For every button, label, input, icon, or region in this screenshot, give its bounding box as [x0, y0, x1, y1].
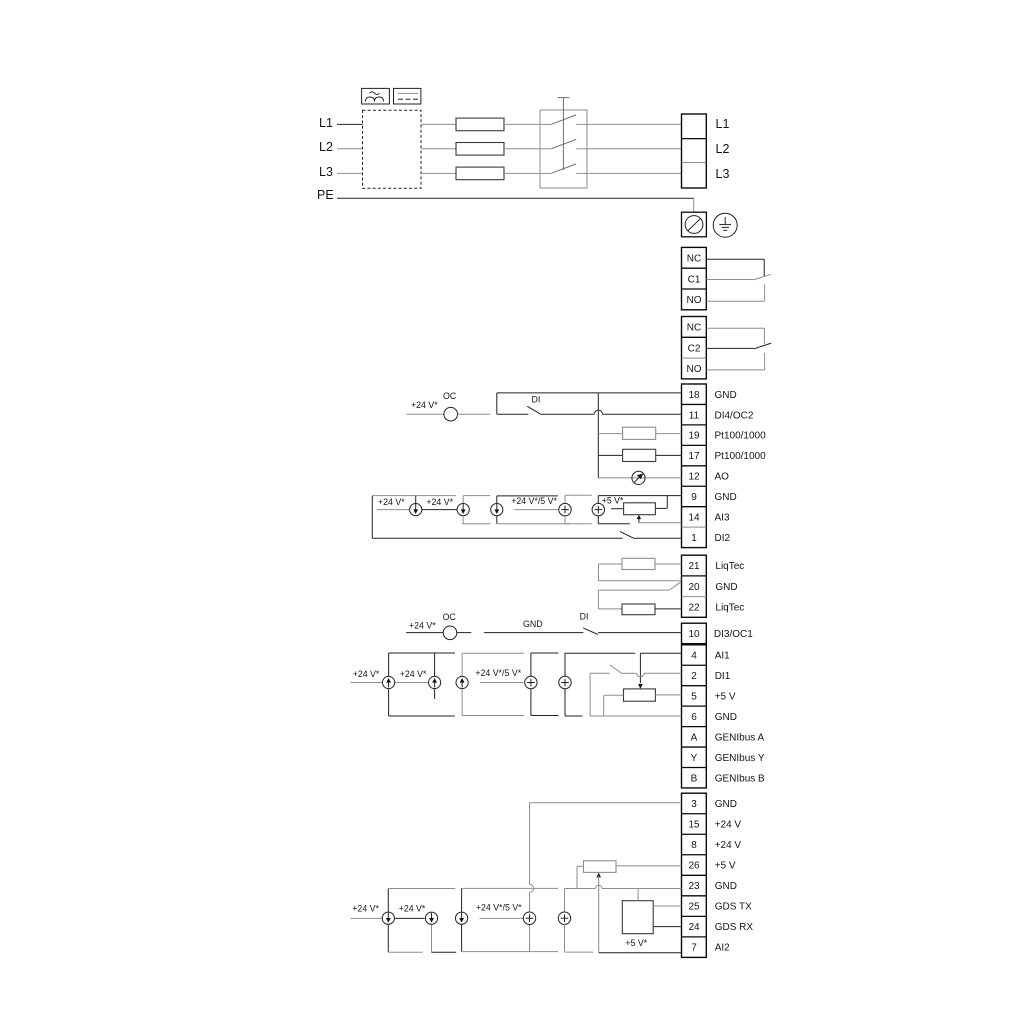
svg-text:GND: GND — [715, 799, 737, 810]
svg-text:7: 7 — [691, 943, 697, 954]
svg-text:C1: C1 — [688, 274, 701, 285]
svg-text:L3: L3 — [716, 167, 730, 181]
svg-text:GDS TX: GDS TX — [715, 902, 752, 913]
svg-text:GND: GND — [715, 712, 737, 723]
svg-text:10: 10 — [688, 629, 700, 640]
svg-text:+24 V*: +24 V* — [426, 497, 453, 507]
svg-text:GND: GND — [715, 582, 737, 593]
svg-text:LiqTec: LiqTec — [715, 603, 744, 614]
svg-text:DI2: DI2 — [715, 533, 731, 544]
svg-text:OC: OC — [443, 612, 457, 622]
svg-text:NO: NO — [687, 364, 702, 375]
svg-text:+24 V: +24 V — [715, 840, 742, 851]
svg-text:3: 3 — [691, 799, 697, 810]
svg-text:17: 17 — [688, 451, 700, 462]
svg-text:19: 19 — [688, 431, 700, 442]
svg-text:2: 2 — [691, 671, 697, 682]
svg-text:24: 24 — [688, 922, 700, 933]
svg-text:L1: L1 — [319, 116, 333, 130]
svg-text:12: 12 — [688, 472, 700, 483]
svg-text:NO: NO — [687, 295, 702, 306]
svg-text:GENIbus A: GENIbus A — [715, 732, 765, 743]
svg-text:1: 1 — [691, 533, 697, 544]
svg-text:5: 5 — [691, 692, 697, 703]
svg-text:26: 26 — [688, 861, 700, 872]
svg-text:DI: DI — [532, 395, 541, 405]
svg-text:GND: GND — [715, 492, 737, 503]
svg-text:8: 8 — [691, 840, 697, 851]
svg-text:Pt100/1000: Pt100/1000 — [715, 451, 767, 462]
svg-text:B: B — [691, 773, 698, 784]
svg-text:A: A — [691, 732, 698, 743]
svg-text:GENIbus Y: GENIbus Y — [715, 753, 765, 764]
svg-text:4: 4 — [691, 651, 697, 662]
svg-text:C2: C2 — [688, 343, 701, 354]
svg-text:GND: GND — [715, 881, 737, 892]
svg-text:22: 22 — [688, 603, 700, 614]
svg-text:DI: DI — [580, 612, 589, 622]
svg-text:+5 V*: +5 V* — [602, 495, 624, 505]
svg-text:DI3/OC1: DI3/OC1 — [714, 629, 753, 640]
svg-text:+5 V: +5 V — [715, 692, 736, 703]
svg-text:L3: L3 — [319, 165, 333, 179]
svg-text:+24 V*: +24 V* — [400, 669, 427, 679]
svg-text:20: 20 — [688, 582, 700, 593]
svg-text:14: 14 — [688, 513, 700, 524]
svg-text:L2: L2 — [716, 142, 730, 156]
svg-text:Pt100/1000: Pt100/1000 — [715, 431, 767, 442]
svg-text:+24 V*: +24 V* — [399, 903, 426, 913]
svg-text:PE: PE — [317, 188, 334, 202]
svg-text:9: 9 — [691, 492, 697, 503]
svg-text:AO: AO — [715, 472, 730, 483]
svg-text:+5 V*: +5 V* — [625, 938, 647, 948]
svg-text:OC: OC — [443, 391, 457, 401]
svg-text:Y: Y — [691, 753, 698, 764]
svg-text:DI4/OC2: DI4/OC2 — [715, 410, 754, 421]
svg-text:18: 18 — [688, 390, 700, 401]
svg-text:+24 V*: +24 V* — [411, 400, 438, 410]
svg-text:AI1: AI1 — [715, 651, 730, 662]
svg-text:L1: L1 — [716, 117, 730, 131]
svg-text:LiqTec: LiqTec — [715, 561, 744, 572]
svg-text:+24 V*: +24 V* — [352, 903, 379, 913]
svg-text:+24 V*: +24 V* — [353, 669, 380, 679]
svg-text:+24 V*: +24 V* — [409, 621, 436, 631]
svg-text:+5 V: +5 V — [715, 861, 736, 872]
svg-text:+24 V: +24 V — [715, 820, 742, 831]
svg-text:DI1: DI1 — [715, 671, 731, 682]
svg-text:23: 23 — [688, 881, 700, 892]
svg-text:AI3: AI3 — [715, 513, 730, 524]
svg-text:AI2: AI2 — [715, 943, 730, 954]
svg-text:GDS RX: GDS RX — [715, 922, 754, 933]
svg-text:+24 V*/5 V*: +24 V*/5 V* — [511, 496, 557, 506]
svg-text:+24 V*/5 V*: +24 V*/5 V* — [476, 903, 522, 913]
svg-text:15: 15 — [688, 820, 700, 831]
svg-text:GND: GND — [523, 619, 543, 629]
svg-text:L2: L2 — [319, 140, 333, 154]
svg-text:NC: NC — [687, 254, 701, 265]
svg-text:+24 V*/5 V*: +24 V*/5 V* — [475, 668, 521, 678]
svg-text:25: 25 — [688, 902, 700, 913]
svg-text:11: 11 — [689, 410, 700, 421]
svg-text:NC: NC — [687, 323, 701, 334]
svg-text:+24 V*: +24 V* — [378, 497, 405, 507]
svg-text:GENIbus B: GENIbus B — [715, 773, 765, 784]
svg-text:6: 6 — [691, 712, 697, 723]
svg-text:21: 21 — [688, 561, 700, 572]
svg-text:GND: GND — [715, 390, 737, 401]
